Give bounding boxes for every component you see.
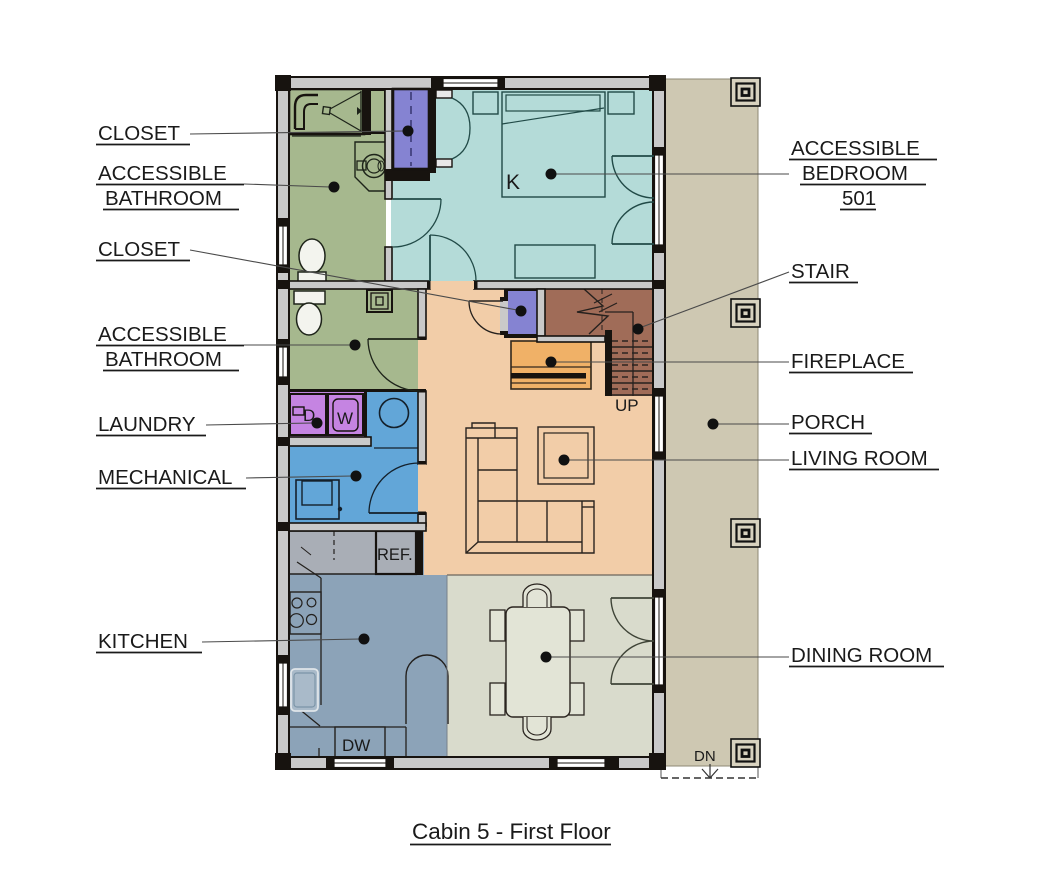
svg-text:ACCESSIBLE: ACCESSIBLE [98,323,227,346]
svg-text:BATHROOM: BATHROOM [105,348,222,371]
svg-text:DW: DW [342,736,370,755]
svg-text:CLOSET: CLOSET [98,238,180,261]
svg-text:UP: UP [615,396,639,415]
svg-text:LAUNDRY: LAUNDRY [98,413,196,436]
svg-text:K: K [506,171,520,194]
svg-text:W: W [337,409,353,428]
svg-text:Cabin 5 - First Floor: Cabin 5 - First Floor [412,819,611,844]
svg-text:MECHANICAL: MECHANICAL [98,466,232,489]
svg-text:CLOSET: CLOSET [98,122,180,145]
svg-text:STAIR: STAIR [791,260,850,283]
svg-text:PORCH: PORCH [791,411,865,434]
svg-text:REF.: REF. [377,546,413,564]
svg-text:ACCESSIBLE: ACCESSIBLE [98,162,227,185]
svg-text:DINING ROOM: DINING ROOM [791,644,932,667]
svg-text:BATHROOM: BATHROOM [105,187,222,210]
svg-text:501: 501 [842,187,876,210]
svg-text:ACCESSIBLE: ACCESSIBLE [791,137,920,160]
svg-text:LIVING ROOM: LIVING ROOM [791,447,928,470]
svg-text:FIREPLACE: FIREPLACE [791,350,905,373]
svg-text:DN: DN [694,748,716,765]
svg-text:KITCHEN: KITCHEN [98,630,188,653]
svg-text:BEDROOM: BEDROOM [802,162,908,185]
